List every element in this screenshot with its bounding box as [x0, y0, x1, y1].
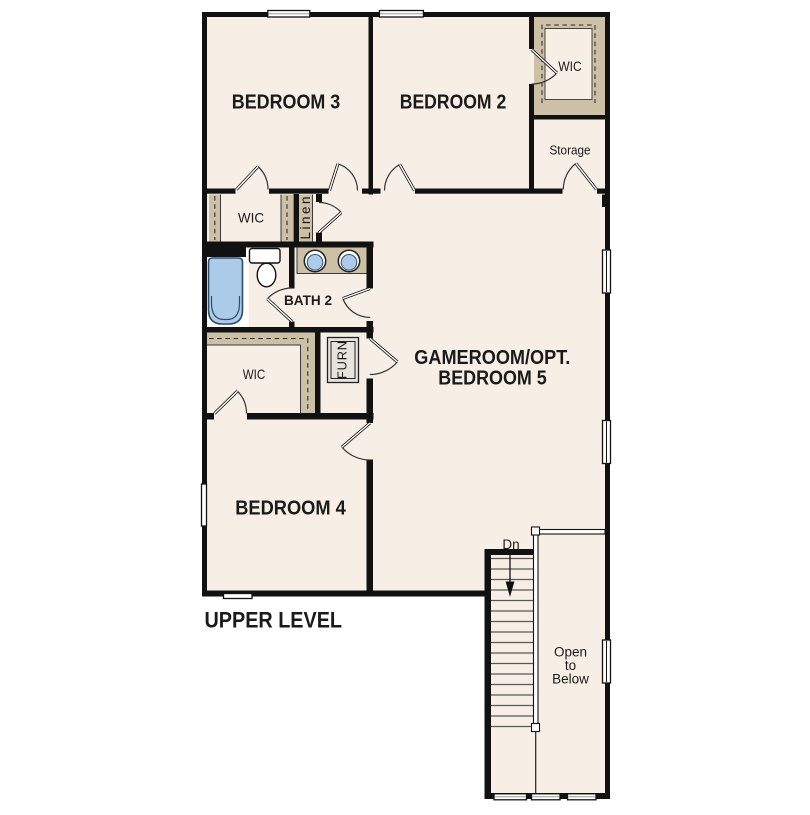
- svg-text:WIC: WIC: [558, 58, 582, 74]
- svg-text:BEDROOM 2: BEDROOM 2: [400, 91, 507, 114]
- svg-text:Linen: Linen: [298, 197, 313, 240]
- svg-text:WIC: WIC: [243, 366, 266, 382]
- svg-text:BEDROOM 4: BEDROOM 4: [235, 497, 346, 520]
- svg-text:UPPER LEVEL: UPPER LEVEL: [205, 607, 343, 632]
- svg-text:Storage: Storage: [550, 143, 591, 158]
- svg-text:BEDROOM 5: BEDROOM 5: [438, 367, 547, 389]
- svg-text:GAMEROOM/OPT.: GAMEROOM/OPT.: [414, 347, 570, 369]
- svg-text:BEDROOM 3: BEDROOM 3: [232, 91, 341, 114]
- svg-text:WIC: WIC: [238, 209, 264, 225]
- svg-text:Below: Below: [552, 672, 589, 687]
- svg-text:FURN: FURN: [335, 341, 350, 379]
- svg-text:BATH 2: BATH 2: [284, 293, 332, 308]
- svg-text:Dn: Dn: [502, 537, 519, 552]
